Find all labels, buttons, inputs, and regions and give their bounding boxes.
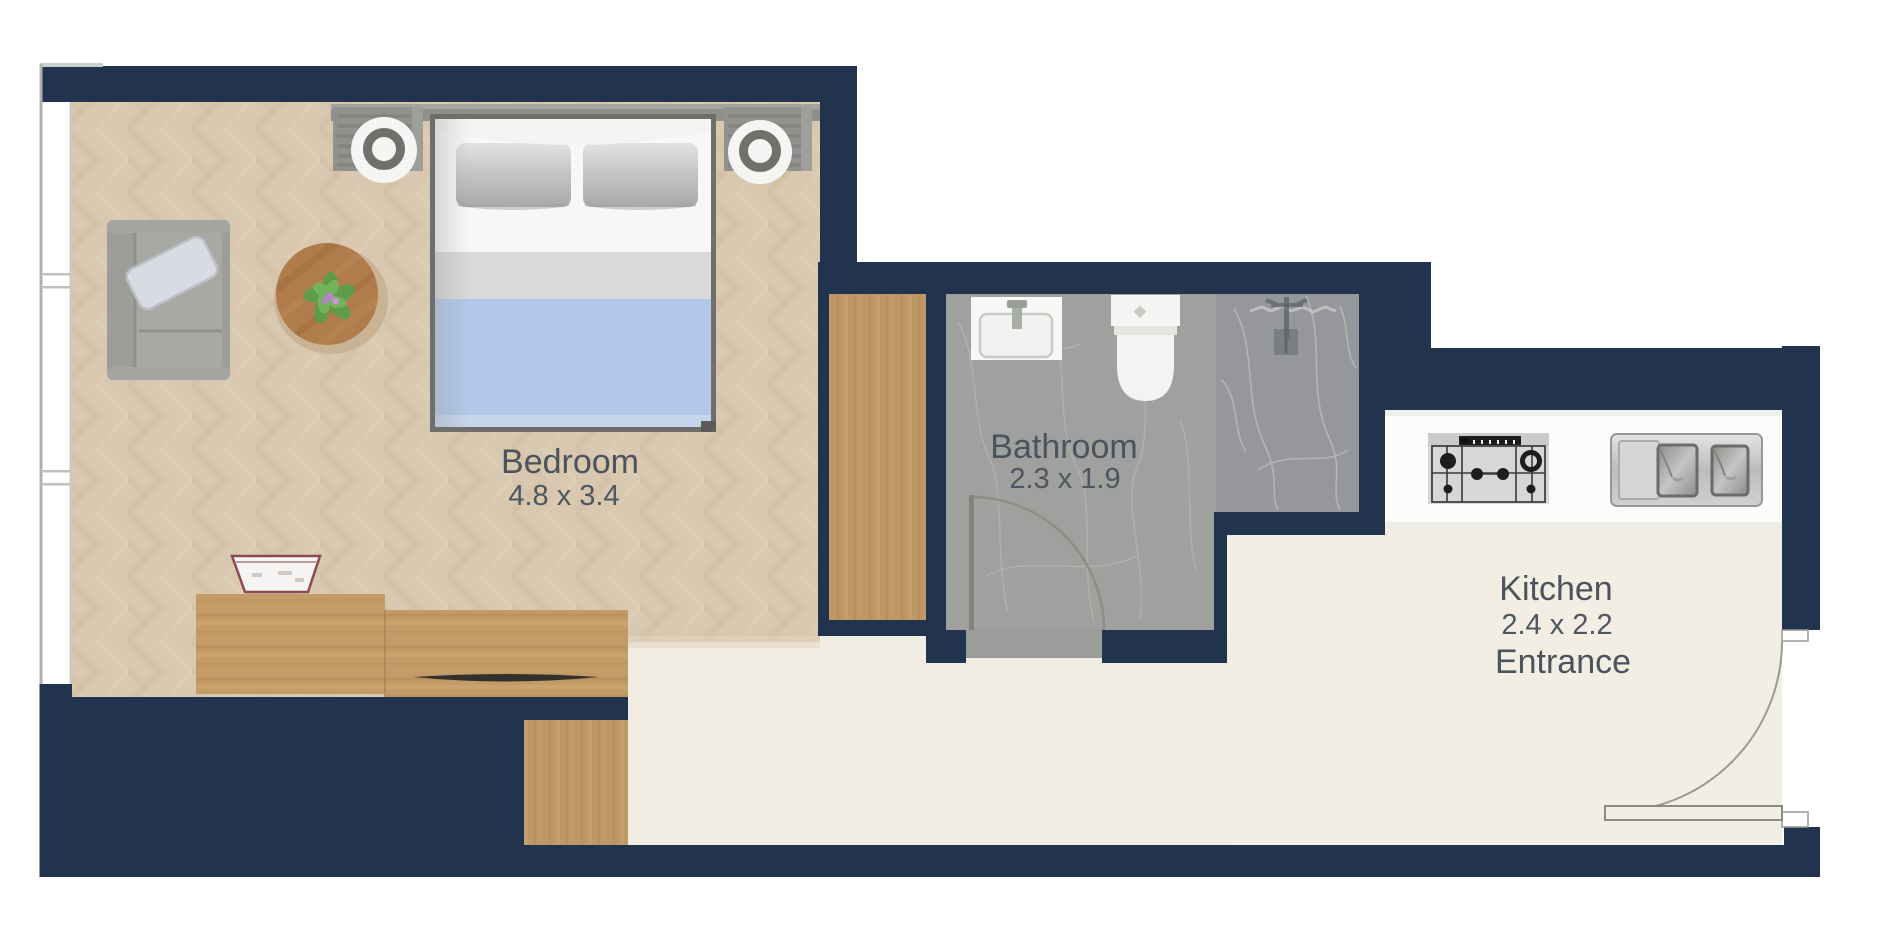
svg-text:4.8 x 3.4: 4.8 x 3.4 [508, 480, 619, 512]
svg-text:2.3 x 1.9: 2.3 x 1.9 [1009, 463, 1120, 495]
svg-text:Entrance: Entrance [1495, 643, 1631, 681]
svg-text:Kitchen: Kitchen [1499, 570, 1612, 608]
svg-text:Bathroom: Bathroom [990, 428, 1137, 466]
svg-text:Bedroom: Bedroom [501, 443, 639, 481]
svg-text:2.4 x 2.2: 2.4 x 2.2 [1501, 609, 1612, 641]
